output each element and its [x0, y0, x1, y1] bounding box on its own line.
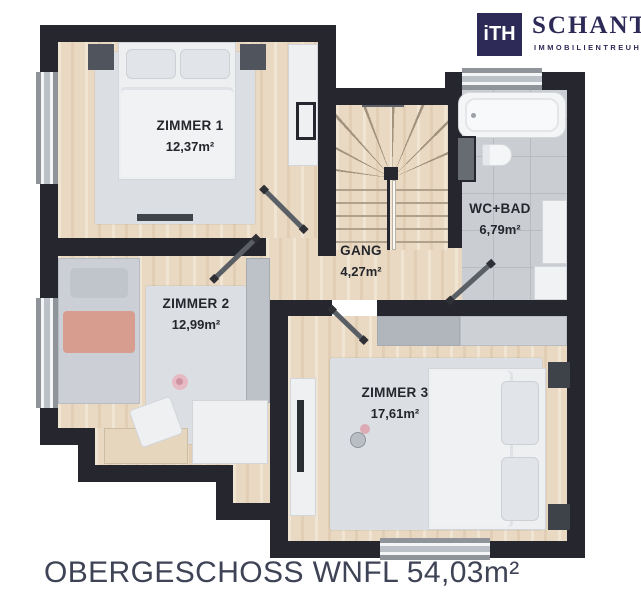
toilet [482, 144, 512, 166]
zimmer1-nightstand-right [240, 44, 266, 70]
bathroom-cabinet-dark [456, 136, 476, 182]
floor-plan-page: ZIMMER 1 12,37m² ZIMMER 2 12,99m² ZIMMER… [0, 0, 641, 600]
stair-rail-dark [387, 180, 390, 250]
ith-logo-monogram: iTH [483, 23, 515, 46]
zimmer2-wardrobe [246, 258, 270, 403]
zimmer3-double-bed [428, 368, 546, 530]
wall-zimmer2-bottom [78, 465, 233, 482]
gang-name: GANG [340, 240, 382, 262]
zimmer3-plant-bloom [360, 424, 370, 434]
bathtub [458, 92, 566, 138]
zimmer3-nightstand-bottom [548, 504, 570, 530]
bathtub-drain [471, 113, 476, 118]
zimmer1-double-bed [118, 42, 236, 180]
zimmer3-wardrobe-left [377, 316, 460, 346]
wall-right [567, 72, 585, 558]
zimmer2-blanket [63, 311, 135, 353]
zimmer2-area: 12,99m² [163, 315, 230, 335]
zimmer3-pillow-bottom [501, 457, 539, 521]
zimmer1-name: ZIMMER 1 [157, 115, 224, 137]
zimmer3-tv [297, 400, 304, 472]
washer [542, 200, 567, 264]
zimmer3-wardrobe-right [460, 316, 567, 346]
wcbad-name: WC+BAD [469, 198, 530, 220]
zimmer1-label: ZIMMER 1 12,37m² [157, 115, 224, 157]
zimmer2-flowers [172, 374, 188, 390]
gang-area: 4,27m² [340, 262, 382, 282]
stair-rail-light [392, 180, 396, 250]
zimmer3-name: ZIMMER 3 [362, 382, 429, 404]
wcbad-label: WC+BAD 6,79m² [469, 198, 530, 240]
zimmer3-area: 17,61m² [362, 404, 429, 424]
zimmer1-pillow-left [126, 49, 176, 79]
stair-newel-post [384, 167, 398, 180]
bath-cabinet [534, 266, 567, 300]
wcbad-area: 6,79m² [469, 220, 530, 240]
zimmer2-dresser [192, 400, 268, 464]
wall-zimmer1-right [318, 42, 336, 256]
zimmer3-label: ZIMMER 3 17,61m² [362, 382, 429, 424]
zimmer1-wall-niche [296, 102, 316, 140]
zimmer1-nightstand-left [88, 44, 114, 70]
zimmer3-plant-pot [350, 432, 366, 448]
logo-company-name: SCHANTL [532, 12, 641, 40]
window-zimmer2 [36, 298, 58, 408]
zimmer2-name: ZIMMER 2 [163, 293, 230, 315]
window-zimmer1 [36, 72, 58, 184]
ith-logo-mark: iTH [477, 13, 522, 56]
zimmer3-nightstand-top [548, 362, 570, 388]
wall-stair-top [318, 88, 458, 105]
zimmer1-area: 12,37m² [157, 137, 224, 157]
wall-step1-h [40, 428, 95, 445]
wall-gang-zimmer3-right [377, 300, 567, 316]
zimmer2-single-bed [58, 258, 140, 404]
toilet-cistern [483, 145, 490, 165]
wall-zimmer1-zimmer2 [58, 238, 250, 256]
zimmer2-label: ZIMMER 2 12,99m² [163, 293, 230, 335]
stair-treads-right [394, 178, 448, 250]
logo-tagline: IMMOBILIENTREUHAND [534, 43, 641, 52]
window-bathroom [462, 68, 542, 90]
zimmer2-flowers-center [176, 378, 183, 385]
floor-caption: OBERGESCHOSS WNFL 54,03m² [44, 556, 520, 590]
zimmer1-pillow-right [180, 49, 230, 79]
zimmer3-pillow-top [501, 381, 539, 445]
wall-zimmer2-zimmer3 [270, 316, 288, 541]
zimmer2-pillow [69, 267, 129, 299]
zimmer1-sideboard [137, 214, 193, 221]
bathtub-inner [465, 98, 559, 132]
wall-top [40, 25, 336, 42]
gang-label: GANG 4,27m² [340, 240, 382, 282]
